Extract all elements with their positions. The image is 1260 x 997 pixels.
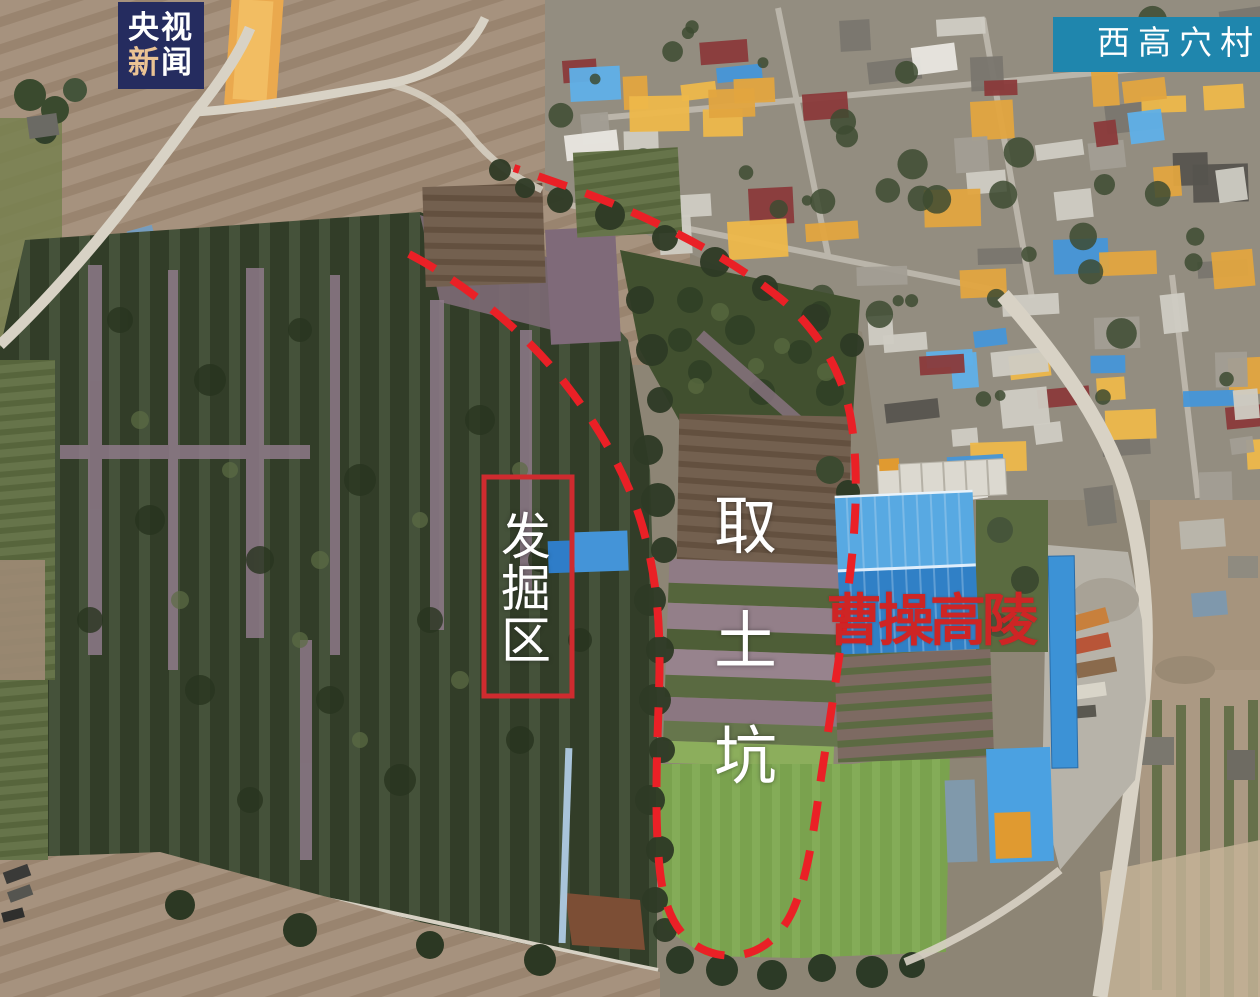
village-building [970,100,1015,141]
village-building [839,19,871,52]
village-tree [770,200,788,218]
village-building [1183,390,1234,407]
village-tree [897,149,927,179]
village-building [954,136,990,173]
village-building [629,95,689,132]
excavation-char-1: 发 [501,511,551,563]
village-building [984,80,1018,96]
village-tree [1078,259,1103,284]
village-tree [895,61,918,84]
village-tree [810,189,835,214]
news-aerial-photo: 央视 新 闻 西高穴村 发 掘 区 取 土 坑 曹操高陵 [0,0,1260,997]
logo-line2: 新 闻 [128,46,194,81]
soil-pit-char-1: 取 [714,496,777,559]
village-building [977,247,1022,265]
village-building [936,17,986,37]
village-tree [876,178,901,203]
village-building [856,266,907,286]
village-tree [1219,372,1234,387]
aerial-photo-scene [0,0,1260,997]
village-building [1105,409,1157,440]
village-tree [548,103,573,128]
excavation-char-3: 区 [501,615,551,667]
village-tree [1185,253,1203,271]
village-building [1215,167,1248,204]
village-tree [1094,174,1115,195]
village-building [727,218,789,260]
village-tree [1095,389,1111,405]
village-tree [1069,223,1097,251]
village-building [1090,355,1125,373]
village-tree [866,301,893,328]
village-building [1233,388,1260,420]
logo-line1: 央视 [128,11,194,46]
village-tree [976,391,991,406]
village-building [1203,84,1245,111]
village-building [883,332,928,353]
logo-wen-char: 闻 [161,46,194,81]
village-tree [905,294,918,307]
village-building [699,39,748,65]
village-building [1091,70,1120,107]
village-building [1127,109,1165,145]
village-tree [1004,137,1034,167]
village-tree [1186,228,1204,246]
logo-xin-char: 新 [128,46,161,81]
village-tree [830,109,856,135]
village-tree [893,295,904,306]
mausoleum-label: 曹操高陵 [826,576,1034,657]
village-tree [1106,318,1137,349]
village-tree [685,20,698,33]
soil-pit-char-3: 坑 [714,726,777,789]
excavation-char-2: 掘 [501,563,551,615]
village-building [919,354,965,376]
village-tree [662,41,683,62]
cctv-logo: 央视 新 闻 [118,2,204,89]
village-tree [1145,181,1171,207]
village-building [1054,188,1094,221]
village-building [708,88,755,118]
village-building [1083,485,1117,526]
village-tree [995,390,1006,401]
village-tree [989,181,1017,209]
soil-pit-char-2: 土 [714,611,777,674]
village-building [1093,120,1118,148]
village-building [1160,293,1189,335]
village-tree [739,165,754,180]
soil-pit-label: 取 土 坑 [714,496,777,789]
excavation-area-label: 发 掘 区 [501,511,551,667]
village-tree [590,74,601,85]
village-building [805,220,859,242]
village-tree [908,186,934,212]
village-building [1211,249,1255,290]
village-building [1099,250,1157,276]
village-name-label: 西高穴村 [1097,26,1260,62]
village-building [999,386,1050,428]
village-tree [802,195,812,205]
village-building [1230,436,1255,455]
village-tree [758,57,769,68]
village-name-badge: 西高穴村 [1053,17,1260,72]
village-tree [1021,246,1036,261]
